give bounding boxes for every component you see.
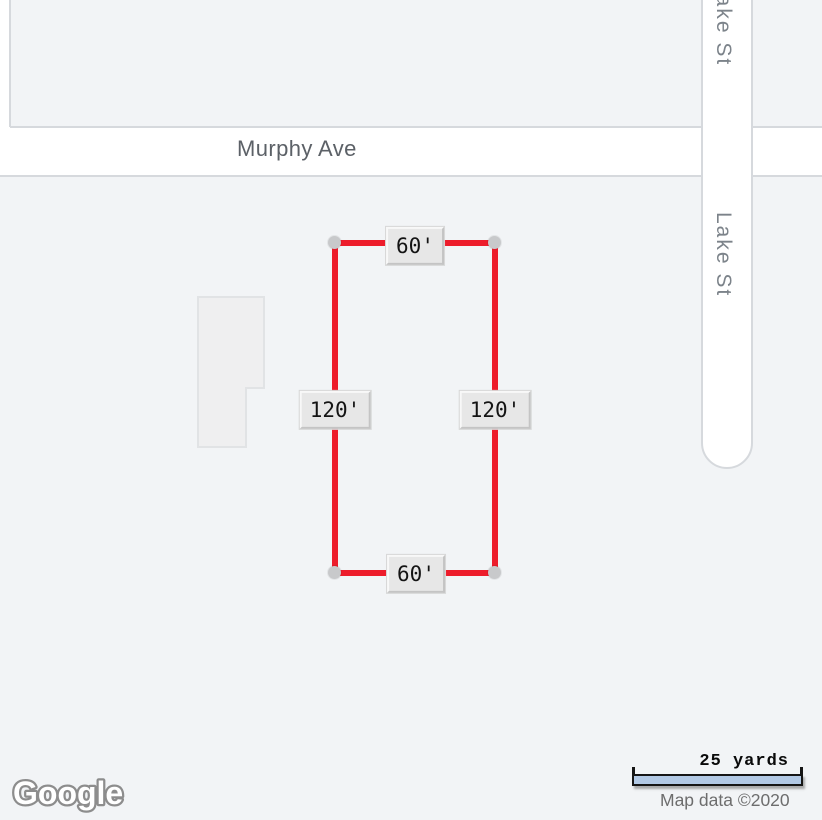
street-label-lake-st-top: Lake St (711, 0, 735, 66)
vertex-handle-top-left[interactable] (328, 236, 341, 249)
vertex-handle-top-right[interactable] (488, 236, 501, 249)
map-canvas[interactable]: Murphy Ave Lake St Lake St 60' 60' 120' … (0, 0, 822, 820)
building-footprint (198, 297, 264, 447)
map-data-attribution: Map data ©2020 (660, 790, 790, 811)
scale-label: 25 yards (632, 752, 797, 771)
google-logo-text: Google (13, 775, 123, 811)
street-label-lake-st-bottom: Lake St (711, 212, 735, 297)
road-left-sliver (0, 0, 10, 129)
dimension-label-top: 60' (386, 227, 444, 265)
dimension-label-right: 120' (460, 391, 531, 429)
intersection-patch (704, 124, 751, 180)
vertex-handle-bottom-left[interactable] (328, 566, 341, 579)
dimension-label-bottom: 60' (387, 555, 445, 593)
scale-bar (632, 774, 803, 786)
street-label-murphy-ave: Murphy Ave (237, 136, 357, 162)
road-murphy-ave (0, 127, 822, 176)
google-logo[interactable]: Google (10, 770, 150, 816)
vertex-handle-bottom-right[interactable] (488, 566, 501, 579)
dimension-label-left: 120' (300, 391, 371, 429)
basemap (0, 0, 822, 820)
